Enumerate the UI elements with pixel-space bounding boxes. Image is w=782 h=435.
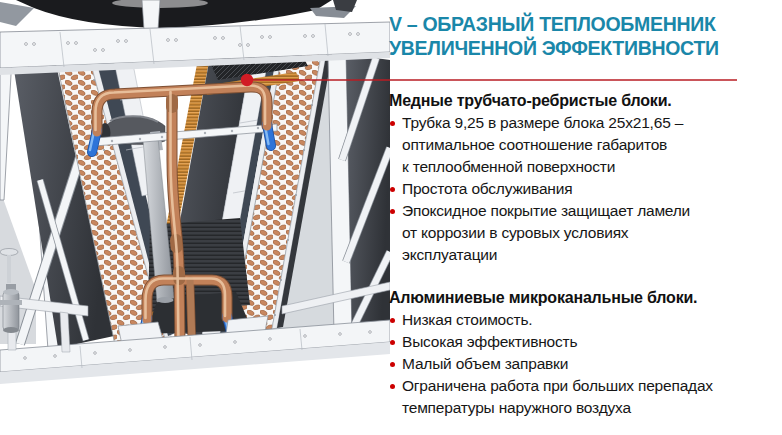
- feature-lists: Медные трубчато-ребристые блоки. Трубка …: [389, 90, 761, 419]
- list-item: Трубка 9,25 в размере блока 25х21,65 – о…: [389, 112, 761, 178]
- list-item: Простота обслуживания: [389, 178, 761, 200]
- section-aluminum-blocks: Алюминиевые микроканальные блоки. Низкая…: [389, 287, 761, 419]
- brochure-slide: V – ОБРАЗНЫЙ ТЕПЛООБМЕННИК УВЕЛИЧЕННОЙ Э…: [0, 0, 782, 435]
- heat-exchanger-cad-image: [0, 0, 390, 400]
- page-title-line2: УВЕЛИЧЕННОЙ ЭФФЕКТИВНОСТИ: [389, 36, 771, 60]
- bullet-icon: [390, 362, 395, 367]
- bullet-icon: [390, 121, 395, 126]
- list-item: Ограничена работа при больших перепадах …: [389, 375, 761, 419]
- bullet-icon: [390, 384, 395, 389]
- list-item: Малый объем заправки: [389, 353, 761, 375]
- page-title: V – ОБРАЗНЫЙ ТЕПЛООБМЕННИК УВЕЛИЧЕННОЙ Э…: [389, 12, 771, 60]
- bullet-icon: [390, 187, 395, 192]
- bullet-icon: [390, 318, 395, 323]
- list-item: Эпоксидное покрытие защищает ламели от к…: [389, 200, 761, 266]
- list-item: Низкая стоимость.: [389, 309, 761, 331]
- section-copper-blocks: Медные трубчато-ребристые блоки. Трубка …: [389, 90, 761, 266]
- bullet-icon: [390, 340, 395, 345]
- aluminum-bullet-list: Низкая стоимость. Высокая эффективность …: [389, 309, 761, 419]
- copper-bullet-list: Трубка 9,25 в размере блока 25х21,65 – о…: [389, 112, 761, 266]
- heat-exchanger-illustration: [0, 0, 390, 400]
- text-column: V – ОБРАЗНЫЙ ТЕПЛООБМЕННИК УВЕЛИЧЕННОЙ Э…: [389, 12, 771, 60]
- section-heading-copper: Медные трубчато-ребристые блоки.: [389, 90, 761, 112]
- section-heading-aluminum: Алюминиевые микроканальные блоки.: [389, 287, 761, 309]
- page-title-line1: V – ОБРАЗНЫЙ ТЕПЛООБМЕННИК: [389, 12, 771, 36]
- bullet-icon: [390, 209, 395, 214]
- list-item: Высокая эффективность: [389, 331, 761, 353]
